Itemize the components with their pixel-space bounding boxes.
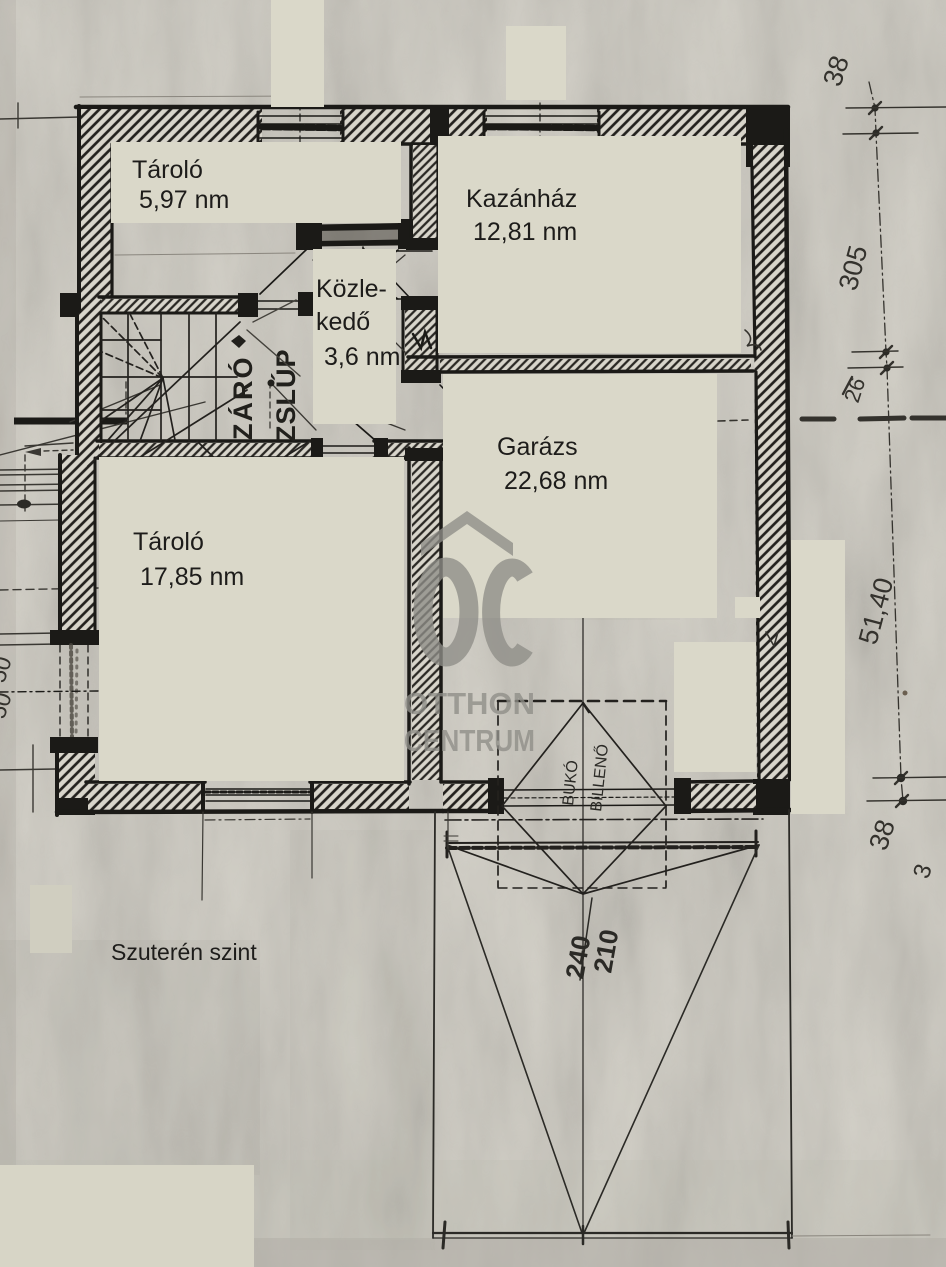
svg-text:Kazánház: Kazánház xyxy=(466,185,577,213)
svg-text:Tároló: Tároló xyxy=(133,528,204,556)
svg-text:17,85 nm: 17,85 nm xyxy=(140,563,244,591)
svg-text:Szuterén szint: Szuterén szint xyxy=(111,939,257,965)
svg-text:5,97 nm: 5,97 nm xyxy=(139,186,229,214)
svg-text:CENTRUM: CENTRUM xyxy=(404,723,535,758)
svg-text:Közle-: Közle- xyxy=(316,275,387,303)
svg-text:3,6 nm: 3,6 nm xyxy=(324,343,400,371)
svg-text:Tároló: Tároló xyxy=(132,156,203,184)
svg-text:ZÁRÓ: ZÁRÓ xyxy=(227,356,258,441)
svg-text:12,81 nm: 12,81 nm xyxy=(473,218,577,246)
svg-text:OTTHON: OTTHON xyxy=(404,686,535,721)
svg-text:kedő: kedő xyxy=(316,308,370,336)
svg-text:Garázs: Garázs xyxy=(497,433,578,461)
svg-text:22,68 nm: 22,68 nm xyxy=(504,467,608,495)
